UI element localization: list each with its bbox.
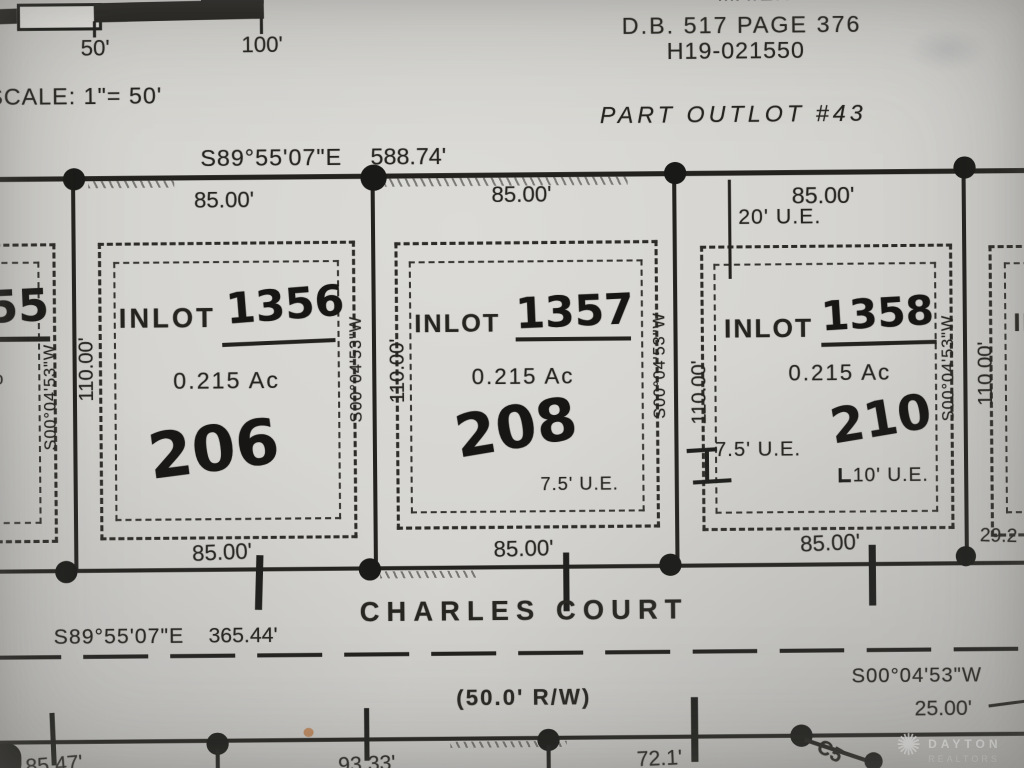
south-dim-2: 93.33' xyxy=(338,752,396,768)
north-boundary-label: S89°55'07"E588.74' xyxy=(200,145,446,170)
scale-bar-segment-white xyxy=(17,3,102,31)
side-bearing-1356: S00°04'53"W xyxy=(348,316,365,423)
photo-smudge xyxy=(907,27,988,73)
lot-label-1358: INLOT xyxy=(724,315,813,342)
side-bearing-1357: S00°04'53"W xyxy=(652,312,669,419)
house-number-1356: 206 xyxy=(145,410,283,489)
lot-line-1358-east xyxy=(961,165,968,559)
survey-corner-dot xyxy=(55,561,77,583)
southeast-distance: 25.00' xyxy=(914,698,971,720)
easement-right-1357: 7.5' U.E. xyxy=(540,474,619,493)
scale-bar-label-50: 50' xyxy=(81,37,110,60)
outlot-label: PART OUTLOT #43 xyxy=(600,102,867,128)
plat-map-photo: 50' 100' SCALE: 1"= 50' MAIER D.B. 517 P… xyxy=(0,0,1024,768)
side-bearing-east: S00°04'53"W xyxy=(941,315,958,422)
lot-label-fragment-right: IN xyxy=(1013,311,1024,337)
street-name: CHARLES COURT xyxy=(360,596,689,626)
survey-corner-dot xyxy=(953,156,975,178)
street-bearing-label: S89°55'07"E365.44' xyxy=(54,625,278,648)
easement-bottom-1358: 10' U.E. xyxy=(853,465,929,485)
survey-corner-dot xyxy=(63,168,85,190)
line-hatch-marks xyxy=(88,180,174,188)
lot-number-1357: 1357 xyxy=(515,288,635,336)
lot-number-fragment-left: 55 xyxy=(0,284,50,331)
north-boundary-distance: 588.74' xyxy=(370,143,446,170)
easement-top-1358: 20' U.E. xyxy=(738,206,821,228)
frontage-top-1358: 85.00' xyxy=(792,184,855,208)
watermark: ✺ DAYTON REALTORS xyxy=(896,731,1002,764)
leader-line xyxy=(988,698,1024,707)
lot-line-1357-1358 xyxy=(672,171,680,567)
side-depth-east: 110.00' xyxy=(975,342,996,406)
dust-speck xyxy=(303,728,313,737)
lot-label-1356: INLOT xyxy=(119,305,216,333)
curve-label: C5 xyxy=(813,736,845,766)
frontage-top-1357: 85.00' xyxy=(491,183,551,206)
survey-corner-dot xyxy=(360,164,387,191)
south-dim-3: 72.1' xyxy=(636,747,682,768)
lot-area-1358: 0.215 Ac xyxy=(788,361,891,384)
frontage-bottom-1357: 85.00' xyxy=(493,537,554,561)
lot-label-1357: INLOT xyxy=(414,311,500,337)
line-hatch-marks xyxy=(380,571,476,579)
easement-bracket-line xyxy=(728,180,731,279)
plat-drawing: 50' 100' SCALE: 1"= 50' MAIER D.B. 517 P… xyxy=(0,0,1024,768)
street-bearing: S89°55'07"E xyxy=(54,625,185,649)
watermark-subtitle: REALTORS xyxy=(928,754,1001,764)
frontage-bottom-1358: 85.00' xyxy=(800,531,861,556)
survey-tick xyxy=(691,697,699,762)
setback-line-inner-lot-right xyxy=(1004,262,1024,514)
scale-text: SCALE: 1"= 50' xyxy=(0,84,162,109)
southeast-bearing: S00°04'53"W xyxy=(851,665,982,686)
lot-line-1356-1357 xyxy=(371,175,378,570)
survey-corner-dot xyxy=(659,554,681,576)
scale-bar-label-100: 100' xyxy=(241,34,283,57)
survey-corner-dot xyxy=(359,558,381,580)
survey-tick xyxy=(255,555,264,610)
lot-number-underline xyxy=(0,336,50,342)
side-depth-1356: 110.00' xyxy=(76,337,97,401)
side-bearing-left: S00°04'53"W xyxy=(43,344,60,451)
scale-bar-upper-row xyxy=(201,0,264,4)
lot-number-1356: 1356 xyxy=(224,279,345,331)
right-of-way-width: (50.0' R/W) xyxy=(456,686,591,709)
north-boundary-bearing: S89°55'07"E xyxy=(200,144,342,172)
dimension-fragment-right: 29.2 xyxy=(980,526,1018,546)
survey-stub xyxy=(547,745,551,768)
frontage-top-1356: 85.00' xyxy=(194,189,254,212)
street-distance: 365.44' xyxy=(208,624,277,648)
survey-stub xyxy=(216,749,220,768)
side-depth-1357: 110.00' xyxy=(387,339,408,403)
south-dim-1: 85.47' xyxy=(25,752,84,768)
survey-corner-dot xyxy=(956,546,976,566)
watermark-brand: DAYTON xyxy=(928,737,1001,751)
easement-tick xyxy=(705,451,709,483)
frontage-bottom-1356: 85.00' xyxy=(192,540,253,565)
side-depth-1358: 110.00' xyxy=(689,360,710,424)
easement-left-1358: 7.5' U.E. xyxy=(715,439,801,460)
lot-area-fragment-left: o xyxy=(0,370,3,387)
owner-name: MAIER xyxy=(717,0,791,5)
survey-tick xyxy=(869,545,877,606)
survey-corner-dot xyxy=(864,752,882,768)
survey-corner-dot xyxy=(790,724,812,746)
sunburst-icon: ✺ xyxy=(896,731,921,761)
street-centerline xyxy=(0,647,1024,660)
lot-number-1358: 1358 xyxy=(820,290,935,337)
deed-book-reference: D.B. 517 PAGE 376 xyxy=(622,13,862,38)
edge-ink-blob xyxy=(0,744,22,768)
easement-bracket-small xyxy=(839,479,851,482)
lot-area-1356: 0.215 Ac xyxy=(173,369,280,393)
survey-corner-dot xyxy=(664,162,686,184)
parcel-number: H19-021550 xyxy=(667,38,805,62)
